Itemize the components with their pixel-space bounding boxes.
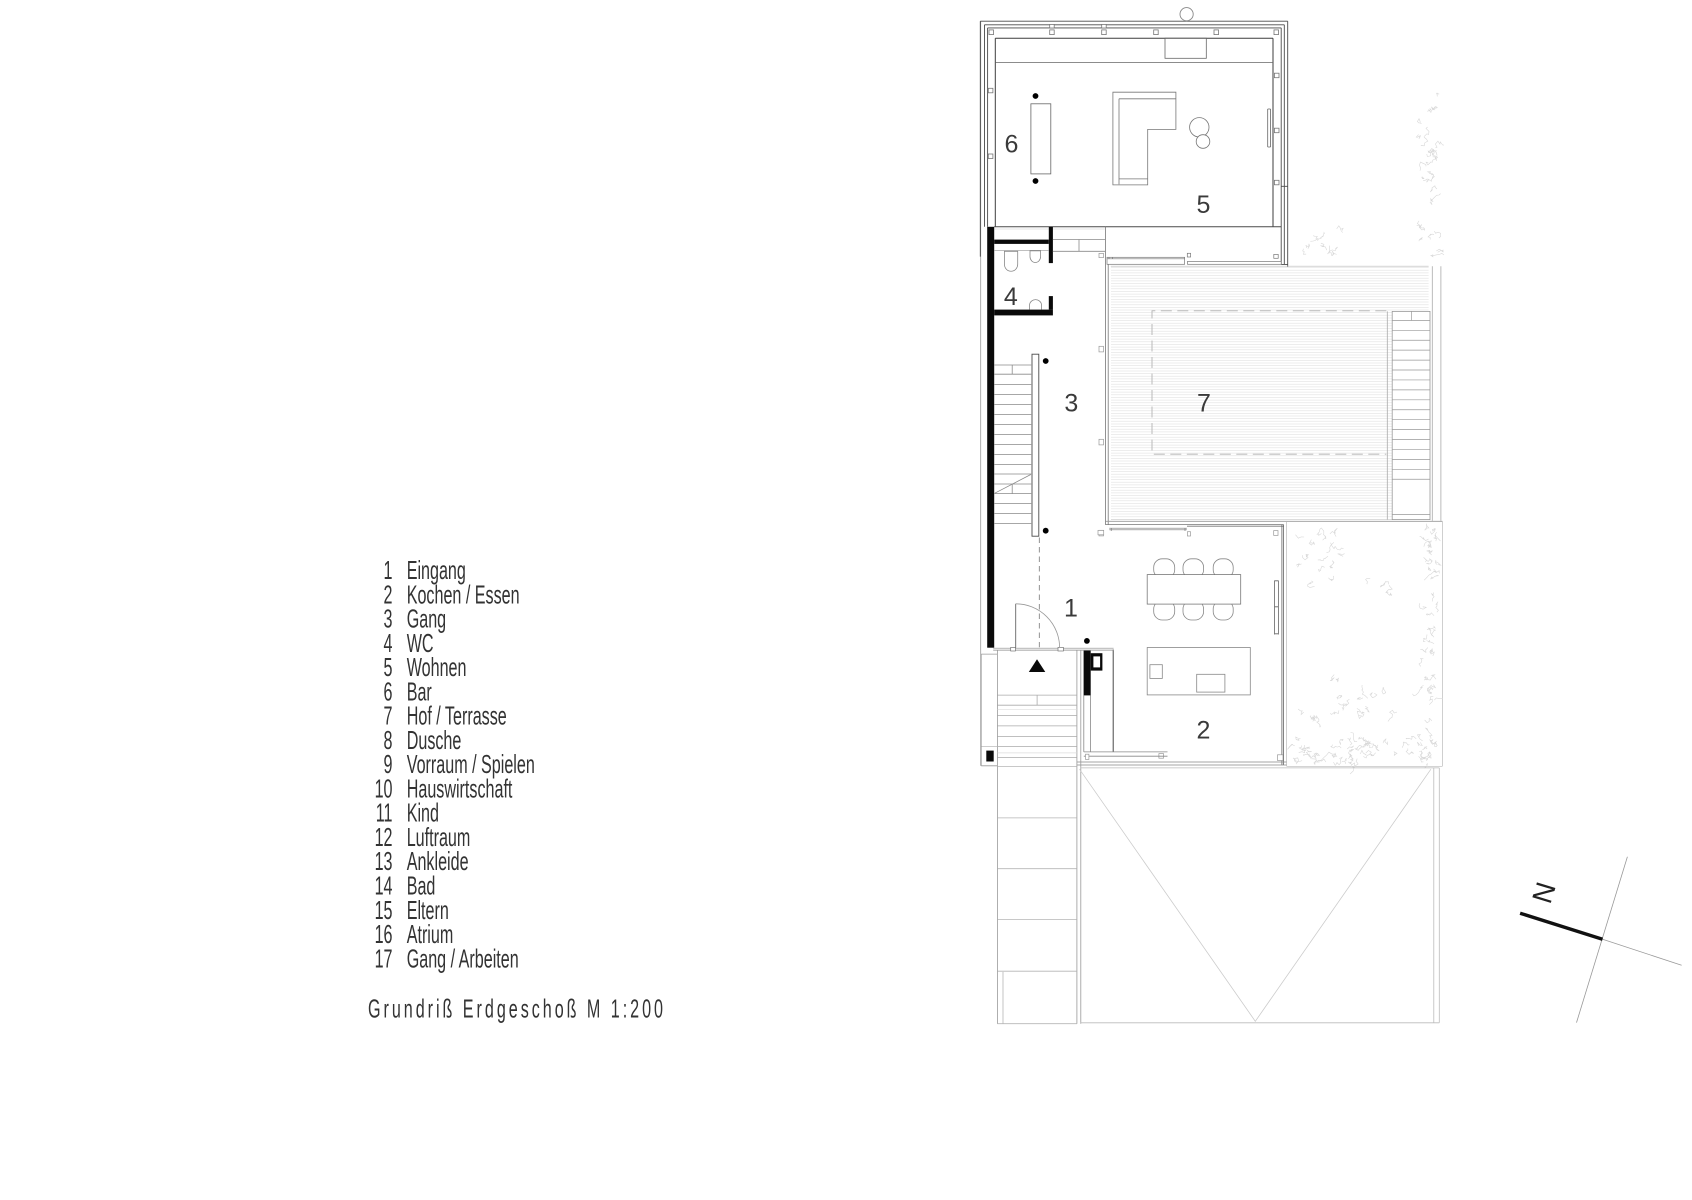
svg-text:5: 5: [1197, 191, 1211, 219]
svg-text:7: 7: [1197, 390, 1211, 418]
svg-text:4: 4: [1004, 283, 1018, 311]
svg-text:Grundriß Erdgeschoß M 1:200: Grundriß Erdgeschoß M 1:200: [368, 993, 666, 1023]
svg-text:1: 1: [1064, 594, 1078, 622]
svg-text:Gang / Arbeiten: Gang / Arbeiten: [407, 943, 519, 973]
svg-text:6: 6: [1005, 131, 1019, 159]
svg-text:2: 2: [1197, 717, 1211, 745]
svg-text:3: 3: [1064, 389, 1078, 417]
svg-text:17: 17: [375, 943, 393, 973]
